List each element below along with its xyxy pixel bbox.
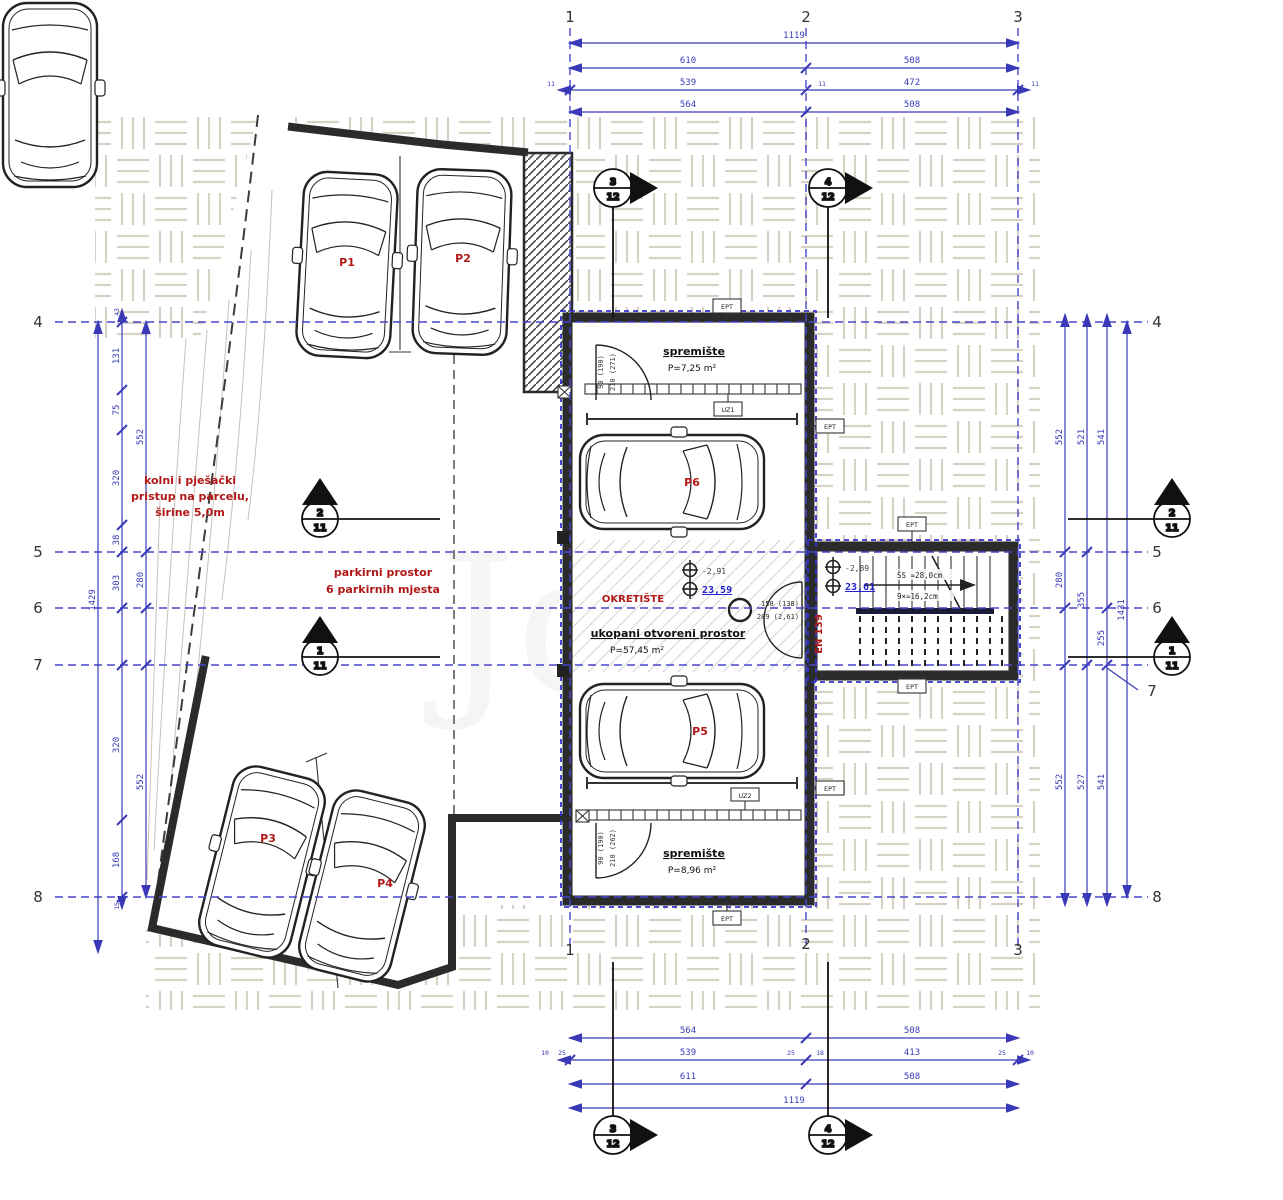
section-sheet: 12: [606, 1139, 619, 1150]
section-sheet: 11: [1165, 661, 1178, 672]
car-label-p5: P5: [692, 725, 708, 738]
grid-label-4-left: 4: [33, 313, 43, 331]
tag-ept: EPT: [906, 521, 918, 529]
section-sheet: 11: [313, 523, 326, 534]
dim-label: 320: [112, 470, 122, 486]
dim-label: 552: [136, 774, 146, 790]
section-number: 3: [610, 1124, 617, 1135]
section-number: 2: [1169, 508, 1176, 519]
floor-plan-canvas: Jd: [0, 0, 1283, 1200]
grid-label-1-bottom: 1: [565, 941, 575, 959]
grid-label-5-left: 5: [33, 543, 43, 561]
level-relative-right: -2,89: [845, 564, 869, 573]
dim-label: 564: [680, 1026, 696, 1036]
door-dim: 90 (190): [597, 355, 605, 389]
dim-label: 541: [1097, 774, 1107, 790]
grid-label-8-left: 8: [33, 888, 43, 906]
label-access-2: pristup na parcelu,: [131, 490, 249, 503]
dim-label: 539: [680, 1048, 696, 1058]
section-number: 4: [825, 177, 832, 188]
label-en139: EN 139: [814, 614, 825, 654]
section-number: 1: [317, 646, 324, 657]
dim-label: 38: [112, 535, 122, 546]
tag-uz2: UZ2: [738, 792, 751, 800]
dim-label: 355: [1077, 592, 1087, 608]
dim-bottom-overall: 1119: [783, 1096, 805, 1106]
label-parking-2: 6 parkirnih mjesta: [326, 583, 440, 596]
dim-label: 320: [112, 737, 122, 753]
tag-ept: EPT: [906, 683, 918, 691]
level-absolute-right: 23,61: [845, 582, 875, 593]
label-access-1: kolni i pješački: [144, 474, 236, 487]
car-label-p1: P1: [339, 256, 355, 269]
dim-label-small: 11: [818, 80, 826, 88]
dim-label-small: 18: [816, 1049, 824, 1057]
level-absolute-left: 23,59: [702, 585, 732, 596]
grid-label-3-bottom: 3: [1013, 941, 1023, 959]
car-label-p2: P2: [455, 252, 471, 265]
dim-label: 508: [904, 100, 920, 110]
grid-label-6-left: 6: [33, 599, 43, 617]
dim-label: 1431: [1117, 599, 1127, 621]
dim-label-small: 10: [1026, 1049, 1034, 1057]
car-label-p4: P4: [377, 877, 393, 890]
car-label-p6: P6: [684, 476, 700, 489]
label-parking-1: parkirni prostor: [334, 566, 433, 579]
label-access-3: širine 5,0m: [155, 506, 225, 519]
room-label-open-area: ukopani otvoreni prostor: [591, 627, 746, 640]
dim-label: 280: [136, 572, 146, 588]
dim-label: 1429: [88, 589, 98, 611]
grid-label-7-left: 7: [33, 656, 43, 674]
dimensions-right: 552 280 552 521 355 527 541 255 541 1431…: [1055, 313, 1162, 906]
dim-top-overall: 1119: [783, 31, 805, 41]
dim-label: 508: [904, 56, 920, 66]
dim-label: 508: [904, 1072, 920, 1082]
level-relative-left: -2,91: [702, 567, 726, 576]
tag-ept: EPT: [824, 423, 836, 431]
dimensions-top: 1119 610 508 539 472 11 11 11 564 508 1 …: [547, 8, 1039, 117]
dim-label-small: 25: [558, 1049, 566, 1057]
grid-label-7-right: 7: [1147, 682, 1157, 700]
dim-label-small: 43: [113, 308, 121, 316]
dim-label: 168: [112, 852, 122, 868]
dim-label: 539: [680, 78, 696, 88]
stair-tread-note: ŠS ≈28,0cm: [897, 571, 943, 580]
grid-label-1-top: 1: [565, 8, 575, 26]
dim-label: 610: [680, 56, 696, 66]
dim-label: 413: [904, 1048, 920, 1058]
tag-ept: EPT: [721, 303, 733, 311]
car-p5: [580, 676, 764, 786]
grid-label-3-top: 3: [1013, 8, 1023, 26]
dim-label: 552: [1055, 429, 1065, 445]
grid-label-2-bottom: 2: [801, 935, 811, 953]
dim-label: 472: [904, 78, 920, 88]
door-dim-center: 209 (2,61): [757, 613, 799, 621]
dim-label: 564: [680, 100, 696, 110]
grid-label-4-right: 4: [1152, 313, 1162, 331]
stair-riser-note: 9×≈16,2cm: [897, 592, 938, 601]
dimensions-left: 1429 43 131 75 320 38 303 320 168 15 552…: [33, 308, 151, 952]
grid-label-5-right: 5: [1152, 543, 1162, 561]
floor-plan-drawing: Jd: [0, 0, 1283, 1200]
room-area-open-area: P=57,45 m²: [610, 646, 664, 656]
dim-label-small: 11: [1031, 80, 1039, 88]
room-label-storage-top: spremište: [663, 345, 725, 358]
room-area-storage-top: P=7,25 m²: [668, 364, 717, 374]
door-dim: 90 (190): [597, 831, 605, 865]
dim-label-small: 10: [541, 1049, 549, 1057]
section-sheet: 12: [821, 1139, 834, 1150]
door-dim-center: 158 (138): [761, 600, 799, 608]
section-sheet: 11: [1165, 523, 1178, 534]
room-area-storage-bottom: P=8,96 m²: [668, 866, 717, 876]
dim-label: 552: [1055, 774, 1065, 790]
section-sheet: 11: [313, 661, 326, 672]
label-turnaround: OKRETIŠTE: [602, 592, 664, 605]
dim-label: 255: [1097, 630, 1107, 646]
tag-ept: EPT: [824, 785, 836, 793]
dim-label-small: 11: [547, 80, 555, 88]
car-p6: [580, 427, 764, 537]
tag-ept: EPT: [721, 915, 733, 923]
grid-label-6-right: 6: [1152, 599, 1162, 617]
grid-label-8-right: 8: [1152, 888, 1162, 906]
dim-label: 611: [680, 1072, 696, 1082]
dim-label: 552: [136, 429, 146, 445]
stair-cut-line: [856, 608, 994, 614]
section-number: 3: [610, 177, 617, 188]
dim-label-small: 25: [998, 1049, 1006, 1057]
tag-uz1: UZ1: [721, 406, 734, 414]
dim-label-small: 25: [787, 1049, 795, 1057]
section-number: 2: [317, 508, 324, 519]
section-sheet: 12: [821, 192, 834, 203]
dim-label: 131: [112, 348, 122, 364]
grid-label-2-top: 2: [801, 8, 811, 26]
section-number: 1: [1169, 646, 1176, 657]
car-label-p3: P3: [260, 832, 276, 845]
dim-label-small: 15: [113, 902, 121, 910]
dim-label: 521: [1077, 429, 1087, 445]
dim-label: 75: [112, 405, 122, 416]
door-dim: 210 (262): [609, 829, 617, 867]
section-number: 4: [825, 1124, 832, 1135]
section-sheet: 12: [606, 192, 619, 203]
dim-label: 303: [112, 575, 122, 591]
door-dim: 210 (271): [609, 353, 617, 391]
room-label-storage-bottom: spremište: [663, 847, 725, 860]
dim-label: 527: [1077, 774, 1087, 790]
dim-label: 508: [904, 1026, 920, 1036]
dim-label: 541: [1097, 429, 1107, 445]
dim-label: 280: [1055, 572, 1065, 588]
